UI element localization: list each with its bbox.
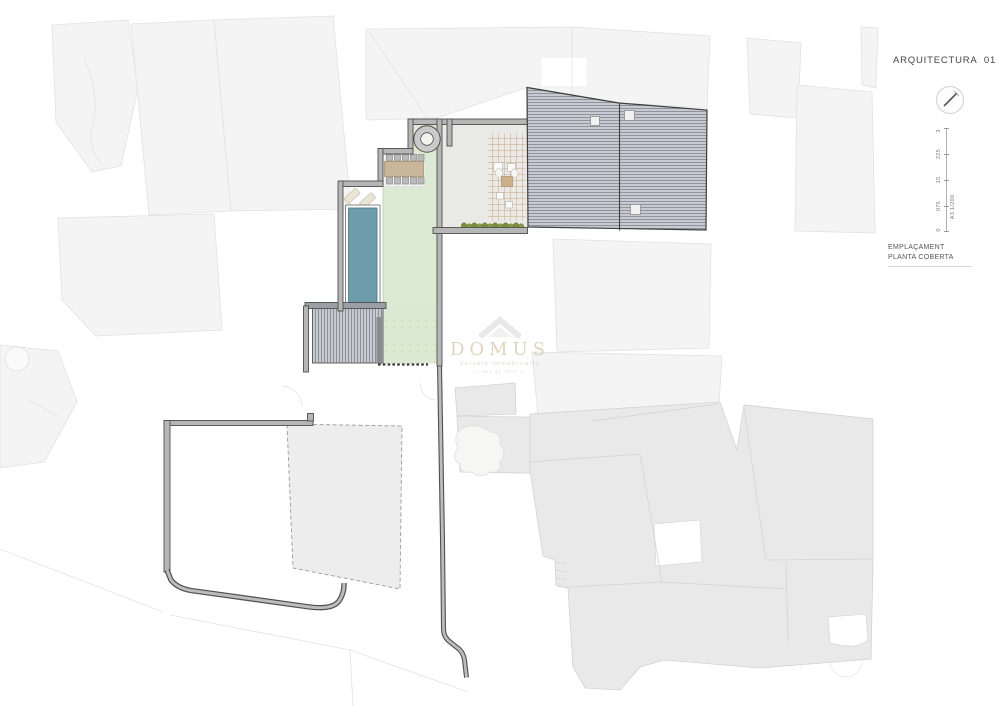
sheet-scale-note: A3 1/200: [950, 195, 956, 219]
scale-tick-label: 0: [936, 228, 942, 231]
titleblock-rule: [888, 266, 972, 267]
sheet-title: ARQUITECTURA 01: [893, 55, 996, 66]
tree-canopy-outline: [454, 426, 504, 476]
scale-tick-label: 15: [936, 177, 942, 184]
swimming-pool: [346, 205, 381, 308]
drawing-label-line1: EMPLAÇAMENT: [888, 243, 954, 253]
drawing-sheet: DOMUS Serveis immobiliaris — des de 1973…: [0, 0, 1000, 706]
scale-tick-label: 075: [936, 201, 942, 211]
spiral-stair: [414, 126, 440, 152]
lower-level-footprint-dashed: [287, 424, 402, 589]
drawing-label: EMPLAÇAMENT PLANTA COBERTA: [888, 243, 954, 263]
scale-tick-label: 225: [936, 149, 942, 159]
dining-set: [383, 154, 425, 187]
north-arrow-icon: [936, 86, 964, 114]
drawing-label-line2: PLANTA COBERTA: [888, 253, 954, 263]
lower-parcels: [454, 383, 873, 690]
main-roof: [527, 88, 707, 231]
dining-table: [385, 162, 424, 177]
scale-tick-label: 3: [936, 129, 942, 132]
louvered-pergola: [305, 303, 386, 364]
trellis-pergola: [442, 125, 528, 228]
site-plan-drawing: [0, 0, 1000, 706]
